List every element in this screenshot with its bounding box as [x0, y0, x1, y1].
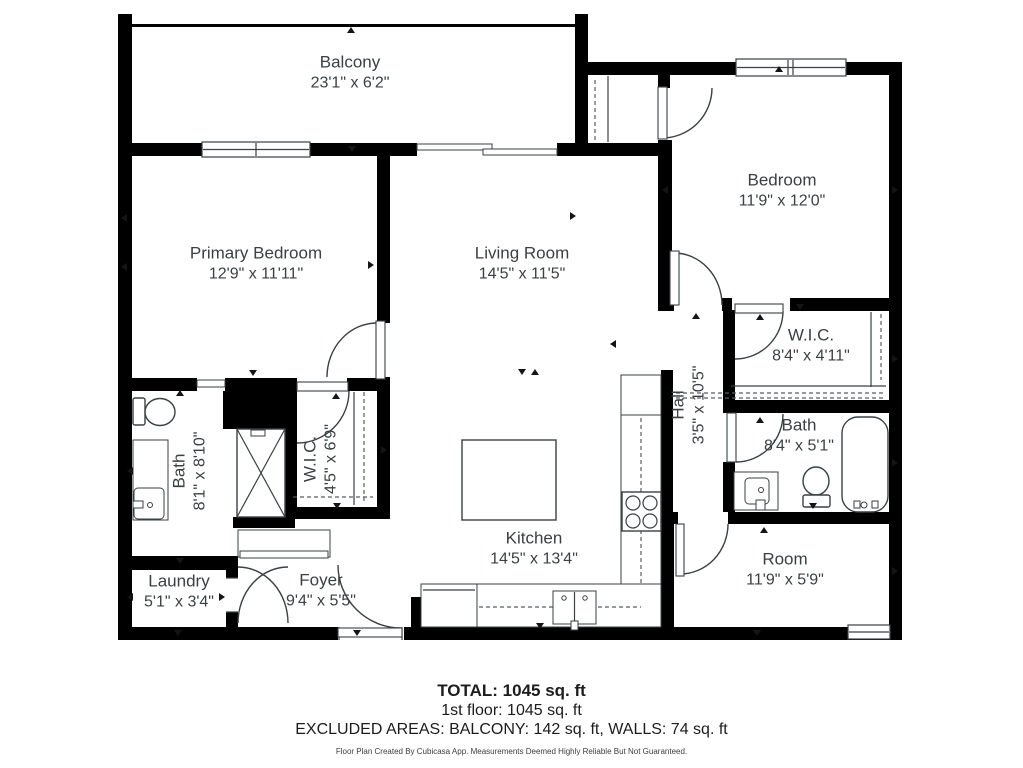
room-dimensions: 14'5" x 11'5"	[475, 265, 570, 286]
bedroom-entry-door	[658, 87, 712, 139]
first-floor-area: 1st floor: 1045 sq. ft	[0, 702, 1023, 720]
bedroom-window	[736, 59, 846, 76]
room-name: Room	[746, 549, 824, 571]
refrigerator	[421, 584, 477, 627]
room-dimensions: 3'5" x 10'5"	[690, 366, 711, 445]
room-label-wic-right: W.I.C. 8'4" x 4'11"	[772, 325, 850, 368]
room-dimensions: 8'1" x 8'10"	[191, 432, 212, 511]
bath-sliding-door	[197, 378, 225, 391]
room-label-room: Room 11'9" x 5'9"	[746, 549, 824, 592]
room-name: Hall	[668, 366, 690, 445]
foyer-closet	[238, 530, 330, 558]
total-area: TOTAL: 1045 sq. ft	[0, 681, 1023, 701]
room-name: W.I.C.	[772, 325, 850, 347]
vanity-sink-left	[133, 440, 168, 520]
shower	[237, 429, 285, 517]
kitchen-island	[462, 440, 556, 520]
room-label-hall: Hall 3'5" x 10'5"	[668, 366, 711, 445]
room-name: Primary Bedroom	[190, 243, 322, 265]
toilet-right	[803, 467, 830, 507]
excluded-areas: EXCLUDED AREAS: BALCONY: 142 sq. ft, WAL…	[0, 721, 1023, 739]
room-label-foyer: Foyer 9'4" x 5'5"	[286, 570, 356, 613]
foyer-closet-doors	[238, 567, 288, 623]
room-dimensions: 12'9" x 11'11"	[190, 265, 322, 286]
room-name: Laundry	[144, 571, 214, 593]
room-label-bedroom: Bedroom 11'9" x 12'0"	[739, 170, 826, 213]
room-dimensions: 11'9" x 5'9"	[746, 571, 824, 592]
primary-bedroom-door	[327, 321, 385, 379]
room-dimensions: 8'4" x 5'1"	[764, 437, 834, 458]
room-name: Foyer	[286, 570, 356, 592]
room-label-bath-right: Bath 8'4" x 5'1"	[764, 415, 834, 458]
room-name: Bath	[169, 432, 191, 511]
room-door	[676, 524, 728, 576]
area-summary: TOTAL: 1045 sq. ft 1st floor: 1045 sq. f…	[0, 681, 1023, 756]
room-dimensions: 5'1" x 3'4"	[144, 593, 214, 614]
kitchen-sink	[553, 591, 596, 630]
room-label-laundry: Laundry 5'1" x 3'4"	[144, 571, 214, 614]
room-label-wic-left: W.I.C. 4'5" x 6'9"	[300, 424, 343, 494]
floor-plan: Balcony 23'1" x 6'2" Bedroom 11'9" x 12'…	[0, 0, 1023, 768]
room-name: W.I.C.	[300, 424, 322, 494]
room-dimensions: 23'1" x 6'2"	[311, 74, 390, 95]
bedroom-hall-door	[670, 251, 722, 305]
entry-closet-lines	[595, 76, 608, 142]
laundry-opening	[226, 578, 238, 612]
room-dimensions: 14'5" x 13'4"	[490, 550, 578, 571]
room-dimensions: 9'4" x 5'5"	[286, 592, 356, 613]
toilet-left	[133, 398, 175, 426]
kitchen-counter-right	[621, 375, 661, 605]
balcony-window	[202, 142, 310, 157]
room-name: Living Room	[475, 243, 570, 265]
room-label-bath-left: Bath 8'1" x 8'10"	[169, 432, 212, 511]
room-name: Kitchen	[490, 528, 578, 550]
room-dimensions: 8'4" x 4'11"	[772, 347, 850, 368]
disclaimer: Floor Plan Created By Cubicasa App. Meas…	[0, 747, 1023, 756]
room-name: Bath	[764, 415, 834, 437]
room-label-kitchen: Kitchen 14'5" x 13'4"	[490, 528, 578, 571]
room-name: Balcony	[311, 52, 390, 74]
floor-plan-canvas	[0, 0, 1023, 768]
room-dimensions: 4'5" x 6'9"	[322, 424, 343, 494]
room-window	[848, 625, 890, 639]
room-label-primary-bedroom: Primary Bedroom 12'9" x 11'11"	[190, 243, 322, 286]
stove	[622, 492, 661, 531]
bathtub	[842, 417, 888, 512]
room-label-living-room: Living Room 14'5" x 11'5"	[475, 243, 570, 286]
room-dimensions: 11'9" x 12'0"	[739, 192, 826, 213]
room-name: Bedroom	[739, 170, 826, 192]
vanity-sink-right	[734, 472, 778, 510]
room-label-balcony: Balcony 23'1" x 6'2"	[311, 52, 390, 95]
balcony-sliding-door	[417, 143, 557, 156]
